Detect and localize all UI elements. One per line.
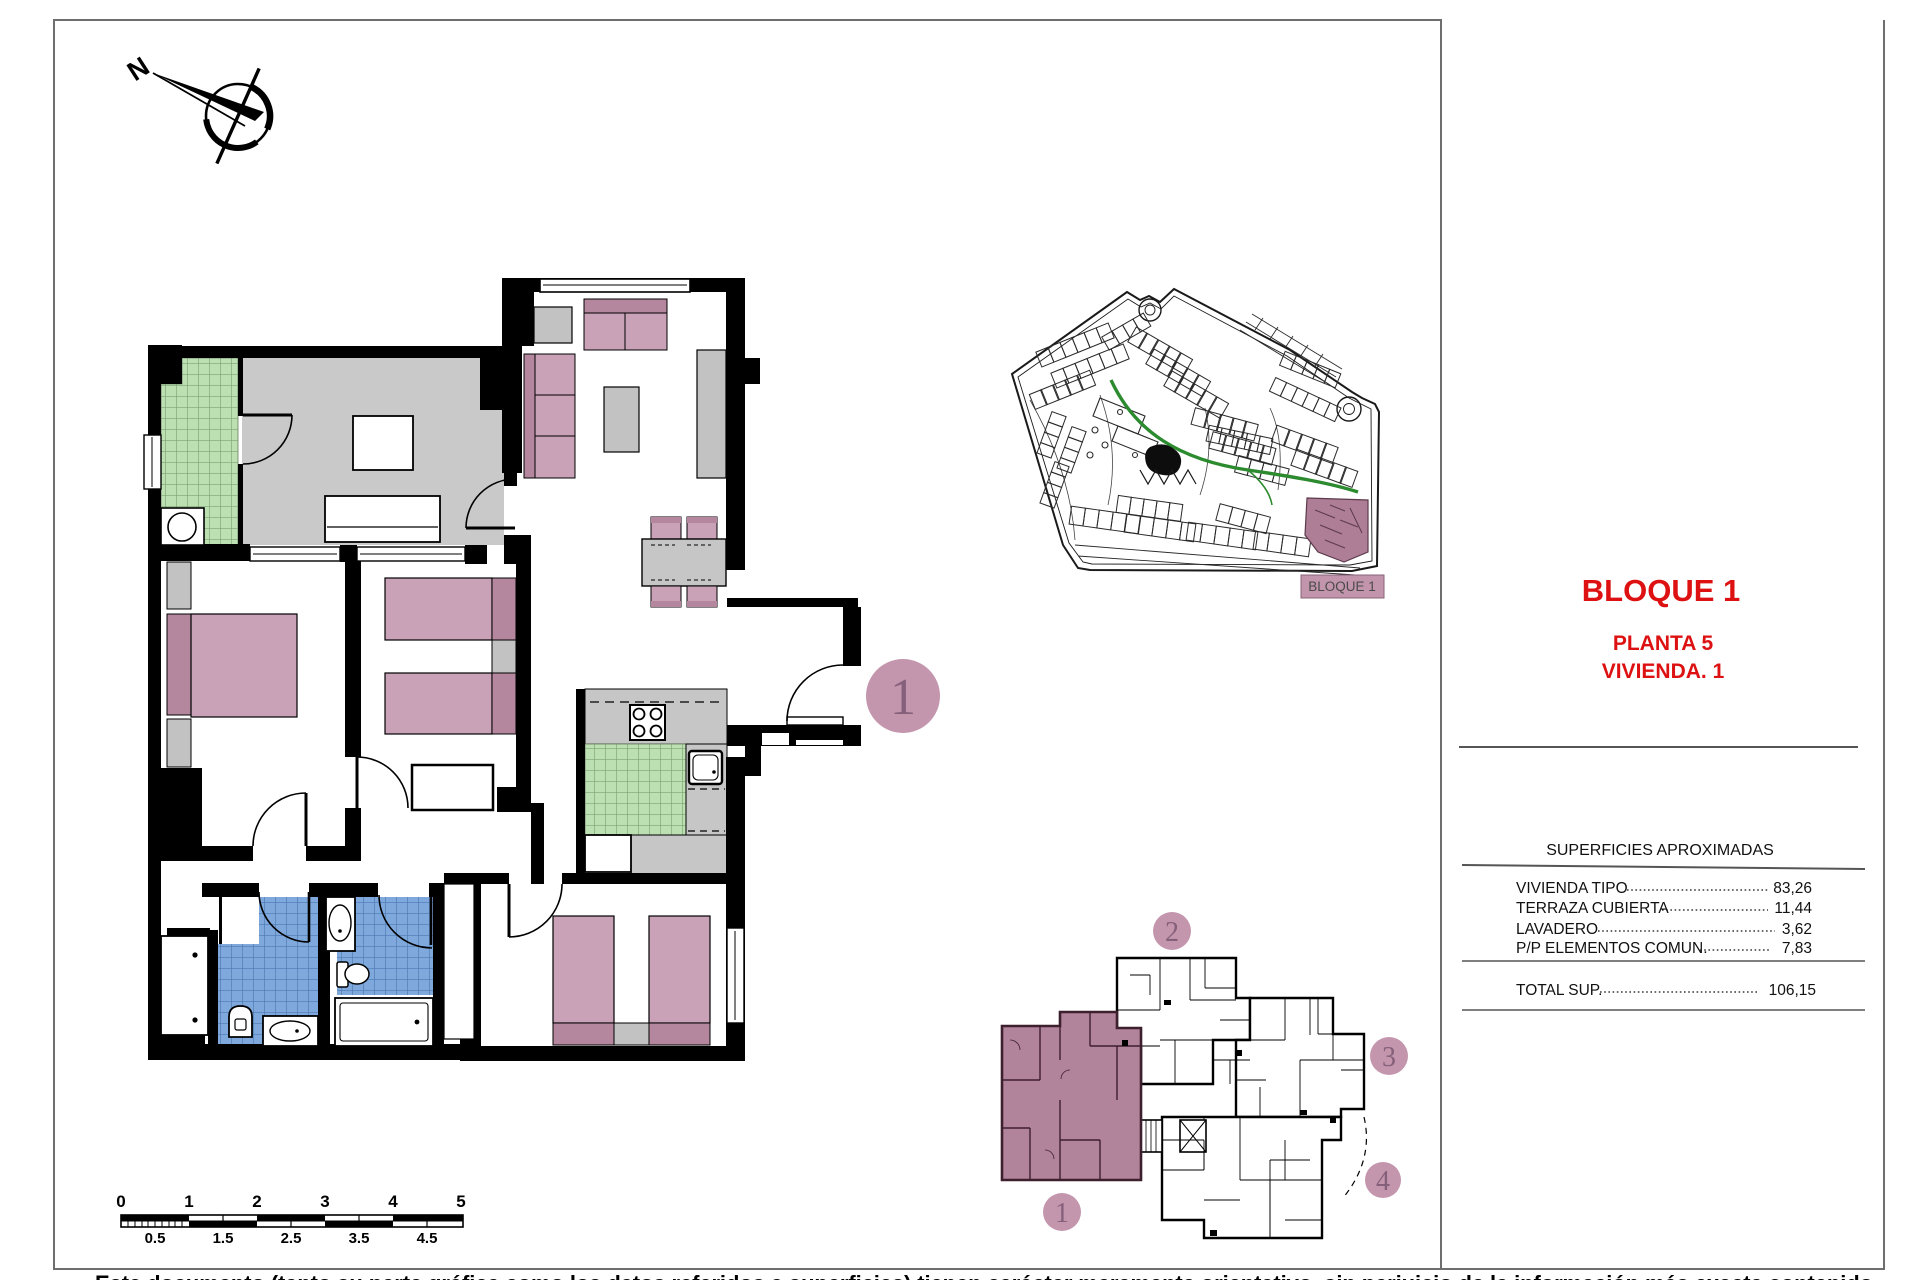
svg-text:2: 2 xyxy=(252,1192,261,1211)
svg-text:4: 4 xyxy=(1376,1166,1390,1197)
svg-text:1.5: 1.5 xyxy=(213,1230,234,1247)
svg-text:TERRAZA CUBIERTA: TERRAZA CUBIERTA xyxy=(1516,900,1669,917)
svg-text:BLOQUE 1: BLOQUE 1 xyxy=(1308,579,1376,594)
svg-text:3.5: 3.5 xyxy=(349,1230,370,1247)
svg-text:Este documento (tanto su parte: Este documento (tanto su parte gráfica c… xyxy=(95,1271,1873,1280)
svg-text:11,44: 11,44 xyxy=(1774,900,1812,917)
svg-text:7,83: 7,83 xyxy=(1782,940,1812,957)
svg-text:2.5: 2.5 xyxy=(281,1230,302,1247)
svg-text:83,26: 83,26 xyxy=(1773,880,1812,897)
svg-text:106,15: 106,15 xyxy=(1769,982,1816,999)
svg-text:4.5: 4.5 xyxy=(417,1230,438,1247)
svg-text:0: 0 xyxy=(116,1192,125,1211)
svg-text:BLOQUE 1: BLOQUE 1 xyxy=(1582,573,1740,608)
svg-text:5: 5 xyxy=(456,1192,465,1211)
svg-text:SUPERFICIES APROXIMADAS: SUPERFICIES APROXIMADAS xyxy=(1546,842,1774,859)
svg-text:PLANTA 5: PLANTA 5 xyxy=(1613,632,1714,655)
svg-text:VIVIENDA. 1: VIVIENDA. 1 xyxy=(1602,660,1725,683)
svg-text:VIVIENDA TIPO: VIVIENDA TIPO xyxy=(1516,880,1628,897)
svg-text:LAVADERO: LAVADERO xyxy=(1516,921,1598,938)
svg-text:1: 1 xyxy=(1055,1198,1069,1229)
svg-text:4: 4 xyxy=(388,1192,398,1211)
svg-text:1: 1 xyxy=(890,669,916,726)
svg-text:TOTAL SUP.: TOTAL SUP. xyxy=(1516,982,1602,999)
svg-text:3,62: 3,62 xyxy=(1782,921,1812,938)
svg-text:P/P ELEMENTOS COMUN.: P/P ELEMENTOS COMUN. xyxy=(1516,940,1708,957)
svg-text:3: 3 xyxy=(320,1192,329,1211)
svg-text:2: 2 xyxy=(1165,917,1179,948)
svg-text:3: 3 xyxy=(1382,1042,1396,1073)
svg-text:0.5: 0.5 xyxy=(145,1230,166,1247)
svg-text:1: 1 xyxy=(184,1192,193,1211)
